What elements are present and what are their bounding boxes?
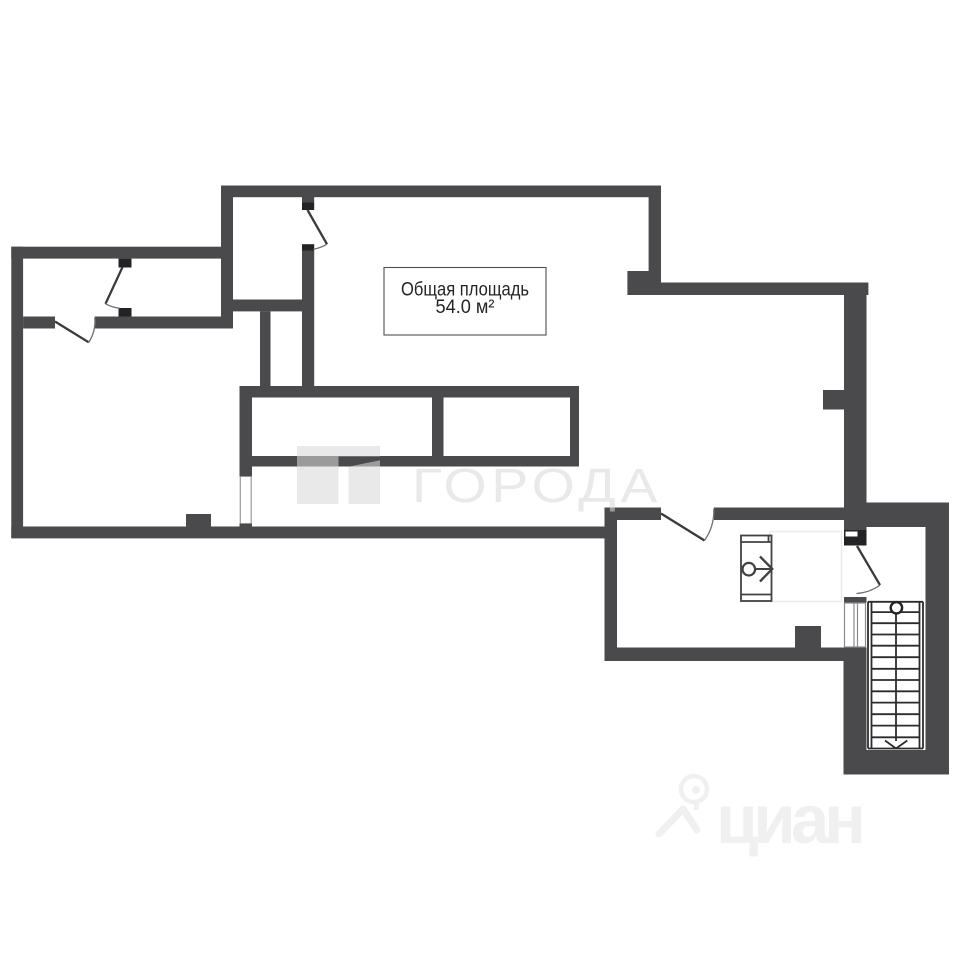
- svg-text:циан: циан: [716, 781, 861, 858]
- svg-text:54.0 м²: 54.0 м²: [436, 296, 495, 318]
- svg-text:ГОРОДА: ГОРОДА: [412, 460, 662, 513]
